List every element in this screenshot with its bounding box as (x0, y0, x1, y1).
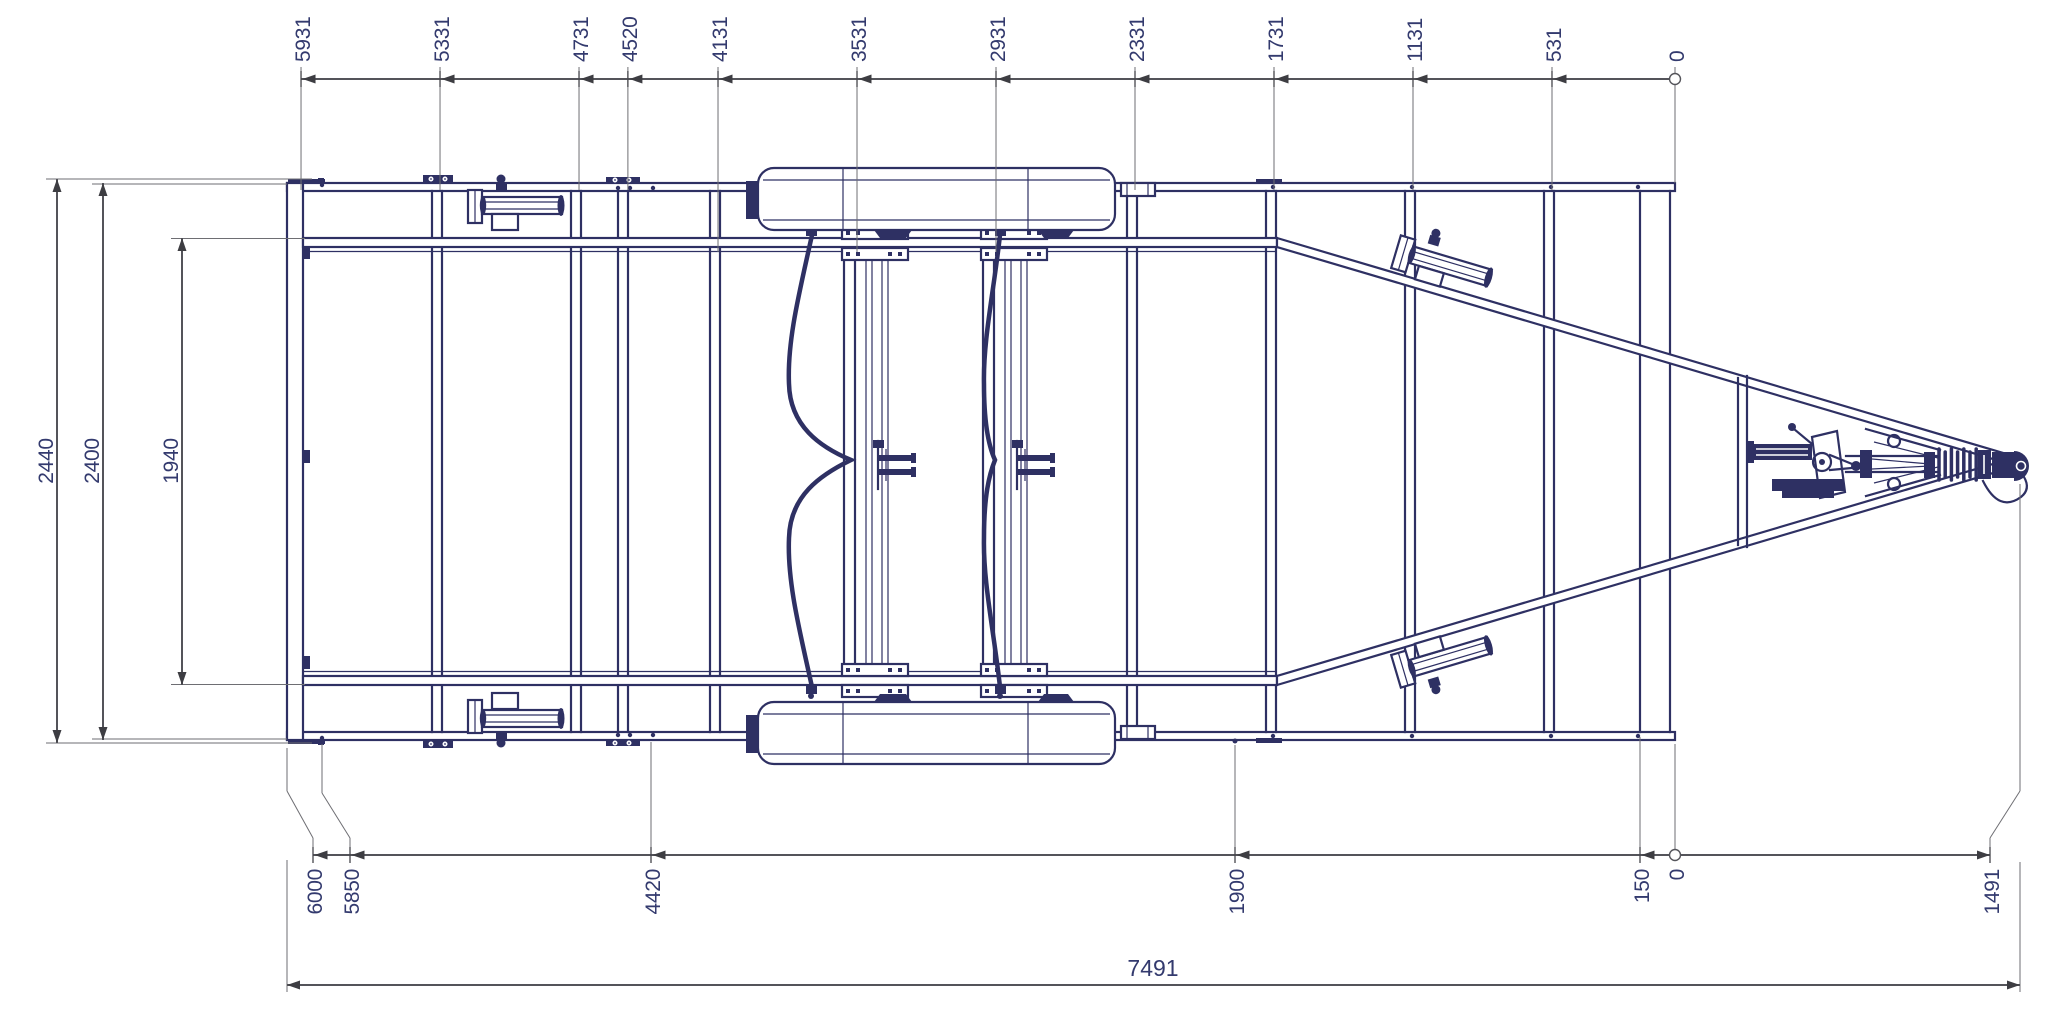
arrowhead-left (352, 851, 365, 860)
bolt (856, 689, 860, 693)
link-pin (1851, 461, 1861, 471)
bolt (898, 668, 902, 672)
arrowhead-left (315, 851, 328, 860)
arrowhead-left (287, 981, 300, 990)
bolt (856, 252, 860, 256)
inner-rail-top (303, 238, 1277, 247)
winch-base-step (1782, 491, 1834, 498)
winch-drum (1752, 444, 1812, 460)
fender-mount (1038, 694, 1074, 702)
bolt (1027, 689, 1031, 693)
hose-end (808, 693, 814, 699)
dim-label-top-0: 0 (1666, 51, 1689, 62)
fender-end-tab (746, 181, 759, 219)
side-guide-rollers (468, 175, 565, 748)
dim-label-top-1131: 1131 (1404, 18, 1427, 62)
shaft-collar (1860, 450, 1872, 478)
bolt (985, 231, 989, 235)
bracket-2331 (1121, 726, 1155, 739)
arrowhead-down (178, 672, 187, 685)
coupler-head (1992, 452, 2015, 478)
line (287, 791, 313, 838)
bolt (846, 689, 850, 693)
v-drawbar (1277, 220, 2020, 704)
hose-connector (806, 686, 817, 694)
winch-strap (1872, 459, 1930, 464)
rail-bolt (1549, 185, 1553, 189)
dim-label-bottom-150: 150 (1631, 869, 1654, 903)
ratchet-hub (1819, 459, 1825, 465)
dim-label-top-4131: 4131 (709, 16, 732, 62)
dim-label-top-2931: 2931 (987, 16, 1010, 62)
drawbar-arm-bottom (1277, 456, 2020, 685)
arrowhead-up (53, 179, 62, 192)
bracket-2331 (1121, 183, 1155, 196)
arrowhead-up (178, 238, 187, 251)
bolt (888, 689, 892, 693)
brake-bracket-cap (873, 440, 884, 448)
bolt (856, 668, 860, 672)
bolt (1037, 252, 1041, 256)
dim-label-width-2400: 2400 (81, 438, 104, 484)
rail-bolt (616, 733, 620, 737)
winch-strap (1872, 466, 1930, 469)
roller-plate (492, 214, 518, 230)
handle-knob (1788, 423, 1796, 431)
winch-coupler-assembly (1748, 423, 2029, 502)
rail-bolt (628, 186, 632, 190)
fender-outline (758, 702, 1115, 764)
bolt (1037, 668, 1041, 672)
mount-bolt-1900 (1233, 739, 1238, 744)
arrowhead-down (99, 727, 108, 740)
rail-bolt (1410, 185, 1414, 189)
arrowhead-left (1137, 75, 1150, 84)
plate-1731 (1256, 179, 1282, 184)
axle-1 (789, 227, 916, 697)
pin-cap (911, 453, 916, 463)
dim-label-top-5331: 5331 (431, 16, 454, 62)
brake-pin (1017, 469, 1050, 475)
rail-bolt (651, 733, 655, 737)
brake-pin (878, 469, 911, 475)
dim-label-bottom-0: 0 (1666, 869, 1689, 880)
line (322, 793, 350, 838)
bolt (846, 231, 850, 235)
plate-5331 (423, 740, 453, 748)
bolt (985, 252, 989, 256)
fender-outline (758, 168, 1115, 230)
brake-pin (1017, 455, 1050, 461)
dim-label-width-1940: 1940 (160, 438, 183, 484)
fender-mount (1038, 230, 1074, 238)
width-dimensions: 244024001940 (35, 179, 312, 743)
bolt (985, 668, 989, 672)
rail-bolt (1549, 734, 1553, 738)
dim-label-top-5931: 5931 (292, 16, 315, 62)
rear-member-tab (303, 450, 310, 463)
tandem-axles (789, 223, 1055, 699)
arrowhead-left (1642, 851, 1655, 860)
drawing-canvas: 5931533147314520413135312931233117311131… (0, 0, 2048, 1020)
datum-circle (1670, 850, 1681, 861)
plate-1731 (1256, 738, 1282, 743)
roller-bar (482, 710, 562, 727)
bolt (846, 668, 850, 672)
dimension-chain-bottom: 600058504420190015001491 (287, 484, 2020, 915)
dim-label-top-4520: 4520 (619, 16, 642, 62)
rail-bolt (1410, 734, 1414, 738)
arrowhead-right (2007, 981, 2020, 990)
dim-label-overall: 7491 (1127, 955, 1178, 981)
dim-label-width-2440: 2440 (35, 438, 58, 484)
bolt (898, 252, 902, 256)
fender-mount (874, 694, 912, 702)
arrowhead-left (581, 75, 594, 84)
axle-2 (981, 227, 1055, 697)
dim-label-top-2331: 2331 (1126, 16, 1149, 62)
bolt (888, 668, 892, 672)
roller-cap (480, 196, 486, 215)
dim-label-top-1731: 1731 (1265, 16, 1288, 62)
rear-member-tab (303, 246, 310, 259)
fenders (746, 168, 1115, 764)
pin-cap (911, 467, 916, 477)
roller-cap (558, 708, 565, 729)
brake-hose (789, 235, 851, 687)
rear-crossmember (287, 183, 303, 740)
roller-plate (492, 693, 518, 709)
rail-bolt (651, 186, 655, 190)
roller-cap (480, 709, 486, 728)
arrowhead-left (720, 75, 733, 84)
winch-base (1772, 479, 1844, 491)
pin-ball (497, 739, 506, 748)
rail-bolt (320, 736, 324, 740)
arrowhead-left (1553, 75, 1566, 84)
roller-bar (482, 197, 562, 214)
dim-label-top-531: 531 (1543, 28, 1566, 62)
dim-label-bottom-4420: 4420 (642, 869, 665, 915)
bolt (1027, 668, 1031, 672)
line (1990, 791, 2020, 838)
arrowhead-right (1977, 851, 1990, 860)
dim-label-top-3531: 3531 (848, 16, 871, 62)
arrowhead-left (1275, 75, 1288, 84)
fender-top (746, 168, 1115, 230)
arrowhead-left (998, 75, 1011, 84)
fender-bottom (746, 702, 1115, 764)
roller-cap (558, 195, 565, 216)
bolt (985, 689, 989, 693)
arrowhead-left (629, 75, 642, 84)
dim-label-bottom-6000: 6000 (304, 869, 327, 915)
datum-circle (1670, 74, 1681, 85)
brake-hose (984, 235, 1000, 687)
hose-connector (995, 686, 1006, 694)
fender-mount (874, 230, 912, 238)
rail-bolt (1636, 185, 1640, 189)
rail-bolt (1271, 734, 1275, 738)
dim-label-bottom-1491: 1491 (1981, 869, 2004, 915)
dim-label-top-4731: 4731 (570, 16, 593, 62)
plate-4520 (606, 177, 640, 183)
overall-length-dimension: 7491 (287, 860, 2020, 992)
pin-cap (1050, 467, 1055, 477)
arrowhead-left (442, 75, 455, 84)
brake-pin (878, 455, 911, 461)
bolt (888, 252, 892, 256)
rail-bolt (628, 733, 632, 737)
rear-member-tab (303, 656, 310, 669)
winch-handle (1794, 429, 1812, 444)
bolt (846, 252, 850, 256)
bolt (1027, 231, 1031, 235)
plate-4520 (606, 740, 640, 746)
rail-bolt (320, 183, 324, 187)
rail-bolt (1271, 185, 1275, 189)
hose-end (997, 693, 1003, 699)
arrowhead-left (859, 75, 872, 84)
fender-end-tab (746, 715, 759, 753)
arrowhead-left (303, 75, 316, 84)
brake-bracket-cap (1012, 440, 1023, 448)
dim-label-bottom-5850: 5850 (341, 869, 364, 915)
arrowhead-left (1414, 75, 1427, 84)
dim-label-bottom-1900: 1900 (1226, 869, 1249, 915)
pin-ball (497, 175, 506, 184)
plate-5331 (423, 175, 453, 183)
arrowhead-up (99, 183, 108, 196)
bolt (1027, 252, 1031, 256)
drawbar-arm-top (1277, 238, 2020, 467)
pin-cap (1050, 453, 1055, 463)
bolt (1037, 689, 1041, 693)
arrowhead-left (653, 851, 666, 860)
arrowhead-left (1237, 851, 1250, 860)
inner-rail-bottom (303, 676, 1277, 685)
roller-pin (496, 183, 507, 192)
arrowhead-down (53, 730, 62, 743)
rail-bolt (616, 186, 620, 190)
trailer-top-view-drawing: 5931533147314520413135312931233117311131… (0, 0, 2048, 1020)
bolt (898, 689, 902, 693)
